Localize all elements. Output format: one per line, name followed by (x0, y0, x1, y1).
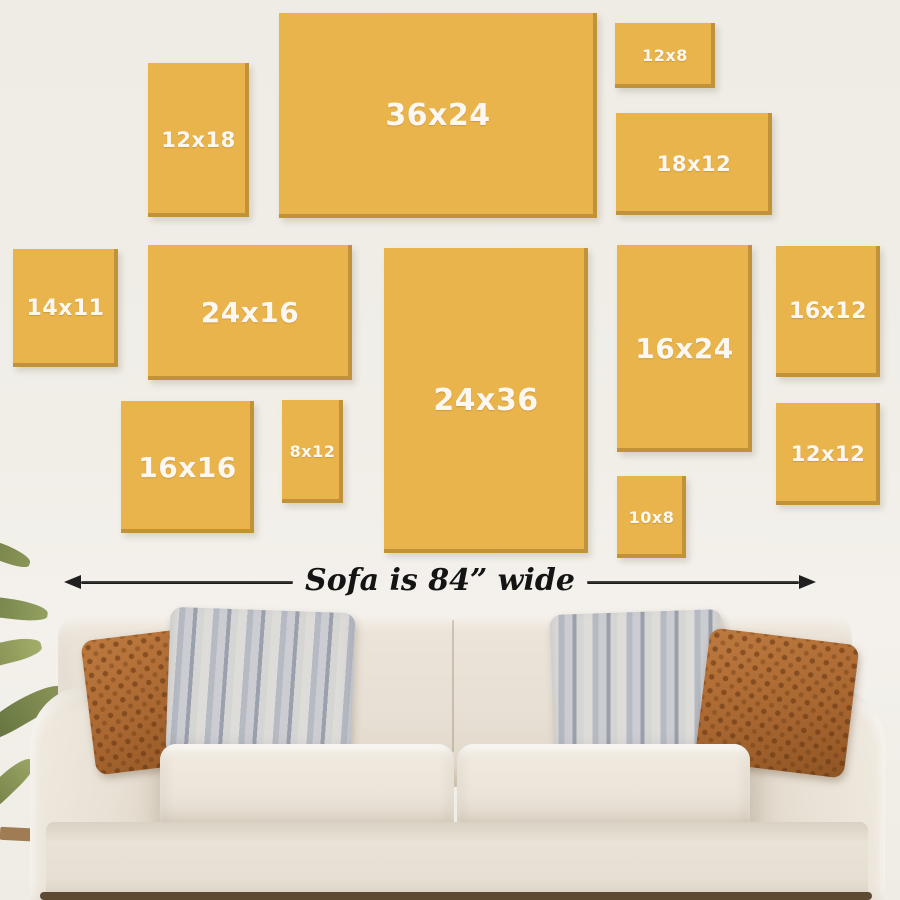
wall-art-size-guide: 12x1836x2412x818x1214x1124x1624x3616x241… (0, 0, 900, 900)
floor-shadow (40, 892, 872, 900)
sofa-back-seam (452, 620, 454, 752)
sofa (0, 0, 900, 900)
pillow-striped-left (165, 607, 355, 761)
sofa-base (46, 822, 868, 900)
